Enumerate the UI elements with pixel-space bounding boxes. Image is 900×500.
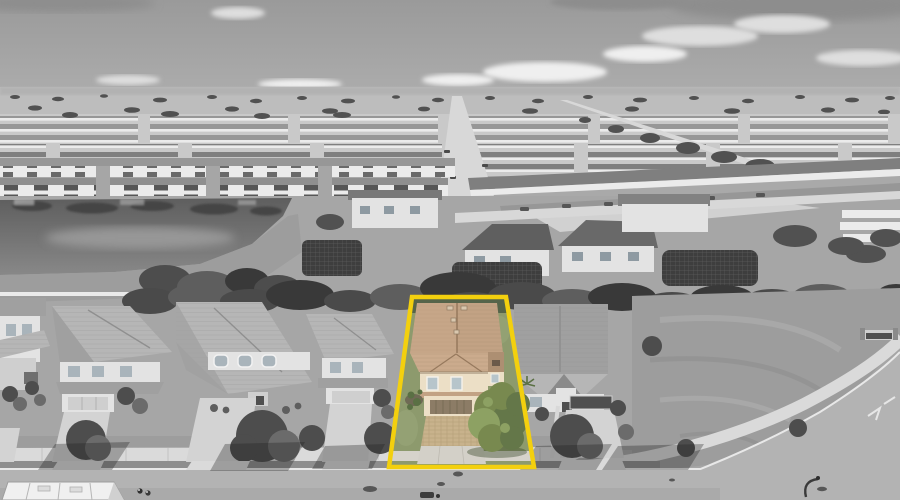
subject-window-1	[427, 377, 438, 390]
aerial-photo-stage	[0, 0, 900, 500]
subject-window-2	[451, 377, 462, 390]
mid-house-4	[618, 194, 710, 232]
aerial-photo	[0, 0, 900, 500]
sky	[0, 0, 900, 98]
pool-cage-1	[302, 240, 362, 276]
verge-bush	[789, 419, 807, 437]
subject-window-3	[491, 374, 499, 383]
lot-tree	[642, 336, 662, 356]
pool-cage-3	[662, 250, 758, 286]
mid-house-1	[348, 190, 442, 228]
truck	[2, 482, 124, 500]
